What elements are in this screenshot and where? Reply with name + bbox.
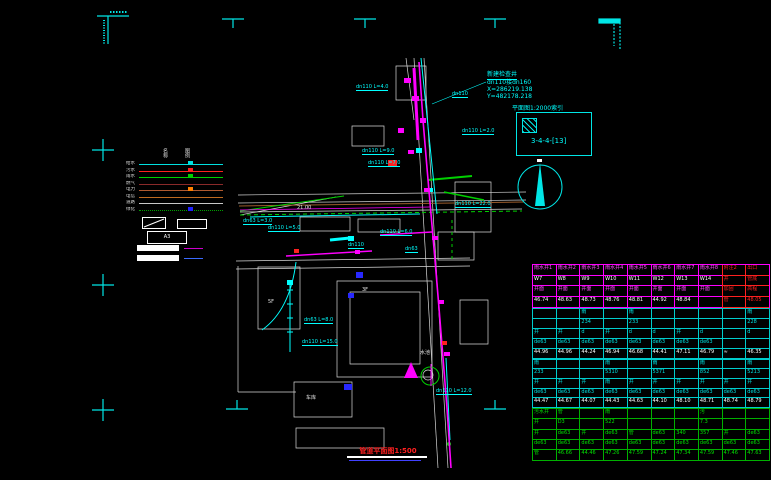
legend-item: 污水 — [126, 168, 238, 174]
table-cell: 44.24 — [579, 349, 603, 359]
note-box — [177, 219, 207, 229]
table-section: 雨雨雨234233228井井d井dd井ddde63de63de63de63de6… — [532, 308, 770, 359]
table-cell: 井 — [532, 379, 556, 389]
legend-header-name: 名称 — [162, 148, 169, 158]
table-cell: W14 — [698, 276, 722, 287]
table-cell: 雨 — [603, 409, 627, 419]
table-cell — [722, 369, 746, 379]
legend-item-label: 雨水 — [126, 174, 138, 180]
table-cell: 雨 — [698, 360, 722, 370]
table-cell: 46.79 — [698, 349, 722, 359]
table-cell: de63 — [674, 389, 698, 399]
table-cell: de63 — [651, 440, 675, 450]
table-cell — [556, 309, 580, 319]
legend-line-swatch — [139, 177, 223, 178]
table-cell: de63 — [698, 339, 722, 349]
table-cell — [651, 419, 675, 429]
table-cell: 5213 — [745, 369, 769, 379]
table-cell: de63 — [698, 389, 722, 399]
table-cell: 46.35 — [745, 349, 769, 359]
legend-marker-icon — [188, 174, 193, 178]
table-cell: de63 — [603, 339, 627, 349]
table-cell: 7.3 — [698, 419, 722, 429]
table-cell: de63 — [603, 440, 627, 450]
table-cell: 井 — [532, 329, 556, 339]
table-cell: 雨水井8 — [698, 265, 722, 276]
table-cell: 井面 — [556, 286, 580, 297]
table-cell: de63 — [651, 389, 675, 399]
table-cell — [532, 319, 556, 329]
table-cell — [722, 309, 746, 319]
table-cell: de63 — [651, 339, 675, 349]
table-cell: 井 — [579, 379, 603, 389]
table-cell: 井 — [532, 430, 556, 440]
table-cell: 井 — [627, 379, 651, 389]
table-cell: de63 — [579, 389, 603, 399]
table-cell: 井面 — [674, 286, 698, 297]
legend-item-label: 燃气 — [126, 181, 138, 187]
table-cell: de63 — [674, 339, 698, 349]
table-cell: de63 — [745, 389, 769, 399]
table-section: 污水井管雨污井D35227.3井de63井de63管de63340357井de6… — [532, 408, 770, 461]
table-cell: ≈ — [722, 349, 746, 359]
table-cell: 48.74 — [722, 398, 746, 408]
table-cell: 井 — [603, 329, 627, 339]
table-cell — [651, 309, 675, 319]
table-cell: 井 — [698, 379, 722, 389]
table-cell: 雨 — [603, 379, 627, 389]
table-cell: 5310 — [603, 369, 627, 379]
table-cell: de63 — [627, 389, 651, 399]
table-section: 雨水井1雨水井2雨水井3雨水井4雨水井5雨水井6雨水井7雨水井8附注2出口W7W… — [532, 264, 770, 308]
table-cell — [722, 339, 746, 349]
table-cell: de63 — [556, 339, 580, 349]
legend-item-label: 给水 — [126, 161, 138, 167]
table-cell: W10 — [603, 276, 627, 287]
cad-drawing-canvas: dn110 L=4.0dn110dn110 L=2.0dn110 L=9.0dn… — [0, 0, 771, 480]
table-cell: 46.94 — [603, 349, 627, 359]
table-cell: 井 — [651, 379, 675, 389]
table-cell: 47.46 — [722, 450, 746, 460]
table-cell — [674, 419, 698, 429]
table-cell: de63 — [532, 440, 556, 450]
table-cell: de63 — [603, 430, 627, 440]
sheet-size-box: A3 — [147, 231, 187, 244]
table-cell — [722, 409, 746, 419]
table-cell: W7 — [532, 276, 556, 287]
table-cell: 47.24 — [651, 450, 675, 460]
table-cell: 48.63 — [556, 297, 580, 308]
table-cell: 48.84 — [674, 297, 698, 308]
table-cell: 井面 — [627, 286, 651, 297]
table-cell: 44.07 — [579, 398, 603, 408]
table-cell — [674, 319, 698, 329]
table-cell: 井 — [532, 419, 556, 429]
table-cell: 48.05 — [745, 297, 769, 308]
blue-key-line — [184, 258, 203, 259]
well-data-table: 雨水井1雨水井2雨水井3雨水井4雨水井5雨水井6雨水井7雨水井8附注2出口W7W… — [532, 264, 770, 461]
legend-item: 雨水 — [126, 174, 238, 180]
table-cell — [603, 319, 627, 329]
legend-item-label: 电力 — [126, 187, 138, 193]
table-cell: 47.59 — [627, 450, 651, 460]
table-cell: W8 — [556, 276, 580, 287]
legend: 名称 图例 给水污水雨水燃气电力电信道路绿化 A3 — [126, 146, 238, 266]
table-cell: d — [627, 329, 651, 339]
table-cell: 852 — [698, 369, 722, 379]
table-cell: 加固 — [722, 286, 746, 297]
table-cell: 井面 — [698, 286, 722, 297]
legend-item-label: 污水 — [126, 168, 138, 174]
table-cell: de63 — [674, 440, 698, 450]
table-cell: W9 — [579, 276, 603, 287]
table-cell — [556, 369, 580, 379]
table-cell: 234 — [579, 319, 603, 329]
table-cell — [745, 419, 769, 429]
table-cell — [627, 419, 651, 429]
magenta-key-line — [184, 248, 203, 249]
table-cell: 47.11 — [674, 349, 698, 359]
legend-line-swatch — [139, 203, 223, 204]
table-cell: W12 — [651, 276, 675, 287]
legend-line-swatch — [139, 164, 223, 165]
table-cell: 47.34 — [674, 450, 698, 460]
table-cell: 44.63 — [627, 398, 651, 408]
table-cell: de63 — [698, 440, 722, 450]
table-cell: 44.67 — [556, 398, 580, 408]
table-cell: d — [579, 329, 603, 339]
table-cell: de63 — [579, 339, 603, 349]
table-cell — [722, 360, 746, 370]
table-cell — [556, 319, 580, 329]
table-cell: 48.73 — [579, 297, 603, 308]
table-cell: 233 — [532, 369, 556, 379]
table-cell: de63 — [627, 440, 651, 450]
table-cell: 管 — [532, 450, 556, 460]
table-cell: d — [745, 329, 769, 339]
table-cell: 44.96 — [556, 349, 580, 359]
legend-item: 燃气 — [126, 181, 238, 187]
table-cell: 井面 — [532, 286, 556, 297]
table-cell: de63 — [556, 440, 580, 450]
table-cell: 雨水井6 — [651, 265, 675, 276]
table-cell — [627, 360, 651, 370]
scale-bar-2 — [137, 255, 179, 261]
table-cell — [579, 360, 603, 370]
table-cell: 管 — [556, 409, 580, 419]
table-cell: de63 — [603, 389, 627, 399]
table-cell: 雨 — [603, 360, 627, 370]
table-cell: 井 — [674, 379, 698, 389]
table-cell: 雨 — [745, 360, 769, 370]
table-cell: de63 — [722, 389, 746, 399]
table-cell: 44.92 — [651, 297, 675, 308]
table-cell — [745, 409, 769, 419]
table-cell: 井 — [722, 379, 746, 389]
table-cell: 357 — [698, 430, 722, 440]
legend-item-label: 绿化 — [126, 207, 138, 213]
table-cell: 48.71 — [698, 398, 722, 408]
table-cell — [722, 319, 746, 329]
title-underline — [347, 456, 427, 458]
table-cell: 井 — [722, 430, 746, 440]
table-cell — [674, 309, 698, 319]
table-cell: 48.81 — [627, 297, 651, 308]
legend-item: 电力 — [126, 187, 238, 193]
table-cell — [627, 369, 651, 379]
table-cell — [698, 297, 722, 308]
table-cell: de63 — [627, 339, 651, 349]
scale-bar-1 — [137, 245, 179, 251]
table-cell: 44.46 — [579, 450, 603, 460]
table-cell: 雨水井1 — [532, 265, 556, 276]
table-cell: 污 — [698, 409, 722, 419]
table-cell: 228 — [745, 319, 769, 329]
legend-header-symbol: 图例 — [184, 148, 191, 158]
legend-item: 绿化 — [126, 207, 238, 213]
table-cell — [674, 360, 698, 370]
table-cell: 管底 — [745, 276, 769, 287]
table-cell — [745, 339, 769, 349]
table-cell: 5371 — [651, 369, 675, 379]
table-cell: 522 — [603, 419, 627, 429]
table-cell: 44.96 — [532, 349, 556, 359]
legend-item: 给水 — [126, 161, 238, 167]
drawing-title: 管道平面图1:500 — [347, 446, 429, 456]
table-cell: 雨水井4 — [603, 265, 627, 276]
legend-marker-icon — [188, 168, 193, 172]
legend-item-label: 电信 — [126, 194, 138, 200]
table-cell — [674, 369, 698, 379]
table-cell: 46.68 — [627, 349, 651, 359]
legend-marker-icon — [188, 207, 193, 211]
table-cell: 井 — [556, 329, 580, 339]
table-cell: 44.41 — [651, 349, 675, 359]
table-cell: de63 — [745, 440, 769, 450]
table-cell — [674, 409, 698, 419]
legend-line-swatch — [139, 210, 223, 211]
table-cell: 雨 — [627, 309, 651, 319]
legend-marker-icon — [188, 187, 193, 191]
table-cell: D3 — [556, 419, 580, 429]
table-cell: 340 — [674, 430, 698, 440]
table-cell — [603, 309, 627, 319]
table-cell: 44.47 — [532, 398, 556, 408]
table-cell: 48.79 — [745, 398, 769, 408]
table-cell: d — [698, 329, 722, 339]
table-cell: W13 — [674, 276, 698, 287]
legend-line-swatch — [139, 171, 223, 172]
table-cell: 管 — [722, 297, 746, 308]
table-cell — [698, 309, 722, 319]
table-cell: 48.10 — [674, 398, 698, 408]
table-cell: de63 — [722, 440, 746, 450]
table-cell: 46.66 — [556, 450, 580, 460]
table-cell: 井 — [556, 379, 580, 389]
table-cell — [579, 419, 603, 429]
table-cell: 井 — [579, 430, 603, 440]
table-cell: 雨水井3 — [579, 265, 603, 276]
table-cell — [651, 409, 675, 419]
table-cell: 雨 — [532, 360, 556, 370]
table-cell: 雨水井7 — [674, 265, 698, 276]
legend-line-swatch — [139, 197, 223, 198]
legend-item: 电信 — [126, 194, 238, 200]
table-cell: W11 — [627, 276, 651, 287]
slope-symbol-box — [142, 217, 166, 229]
legend-marker-icon — [188, 161, 193, 165]
table-cell: 高程 — [745, 286, 769, 297]
table-cell — [579, 409, 603, 419]
table-cell: 雨 — [745, 309, 769, 319]
table-cell — [532, 309, 556, 319]
table-cell: de63 — [532, 389, 556, 399]
table-cell: 47.26 — [603, 450, 627, 460]
legend-item: 道路 — [126, 200, 238, 206]
table-cell: 233 — [627, 319, 651, 329]
table-cell: de63 — [579, 440, 603, 450]
table-cell: 雨水井5 — [627, 265, 651, 276]
table-cell: 井面 — [651, 286, 675, 297]
table-cell: de63 — [651, 430, 675, 440]
table-cell: 雨 — [651, 360, 675, 370]
table-cell: 出口 — [745, 265, 769, 276]
table-cell: 附注2 — [722, 265, 746, 276]
table-cell: de63 — [532, 339, 556, 349]
table-cell: 47.63 — [745, 450, 769, 460]
table-cell — [556, 360, 580, 370]
legend-line-swatch — [139, 184, 223, 185]
legend-item-label: 道路 — [126, 200, 138, 206]
table-cell: d — [651, 329, 675, 339]
table-cell: 井面 — [603, 286, 627, 297]
table-cell: 47.59 — [698, 450, 722, 460]
table-cell: 雨 — [579, 309, 603, 319]
table-cell: 48.76 — [603, 297, 627, 308]
table-cell: 井 — [745, 379, 769, 389]
table-section: 雨雨雨雨雨233531053718525213井井井雨井井井井井井de63de6… — [532, 359, 770, 408]
table-cell: 井 — [722, 276, 746, 287]
table-cell: 污水井 — [532, 409, 556, 419]
table-cell — [722, 419, 746, 429]
table-cell: de63 — [745, 430, 769, 440]
table-cell: 管 — [627, 430, 651, 440]
table-cell — [698, 319, 722, 329]
table-cell: 44.43 — [603, 398, 627, 408]
table-cell — [651, 319, 675, 329]
table-cell: 井面 — [579, 286, 603, 297]
table-cell: de63 — [556, 389, 580, 399]
table-cell: 雨水井2 — [556, 265, 580, 276]
legend-line-swatch — [139, 190, 223, 191]
title-underline-blue — [349, 460, 421, 461]
table-cell: 井 — [674, 329, 698, 339]
table-cell: 46.74 — [532, 297, 556, 308]
table-cell — [722, 329, 746, 339]
table-cell — [579, 369, 603, 379]
table-cell — [627, 409, 651, 419]
table-cell: 44.10 — [651, 398, 675, 408]
table-cell: de63 — [556, 430, 580, 440]
